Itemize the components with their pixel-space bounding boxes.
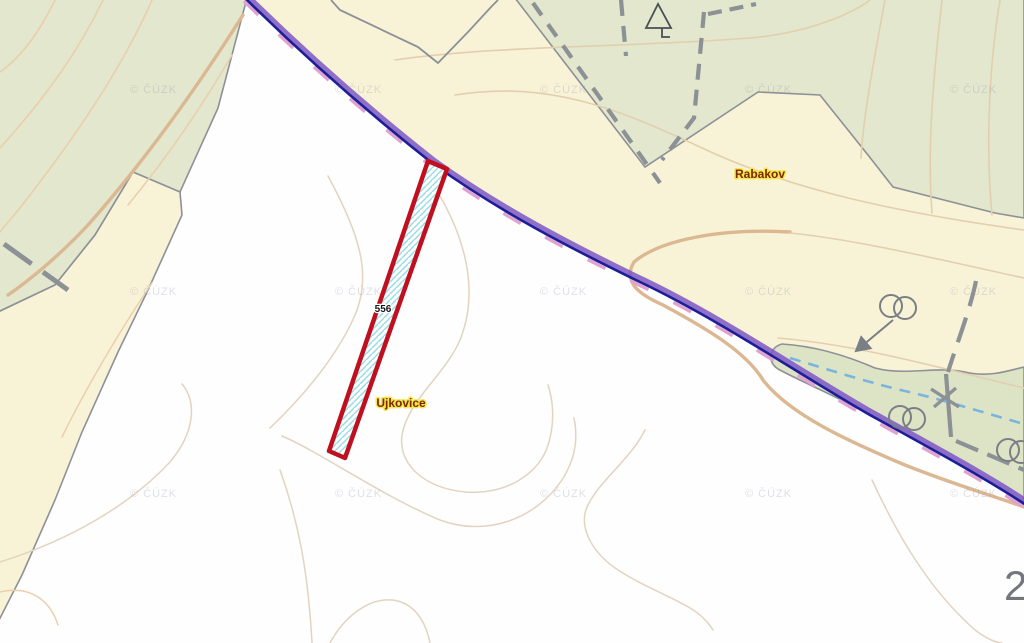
watermark: © ČÚZK <box>335 83 382 96</box>
watermark: © ČÚZK <box>130 487 177 500</box>
parcel-number-label: 556 <box>375 304 392 315</box>
place-label-ujkovice: Ujkovice <box>376 396 426 410</box>
watermark: © ČÚZK <box>335 487 382 500</box>
watermark: © ČÚZK <box>335 285 382 298</box>
watermark: © ČÚZK <box>540 83 587 96</box>
watermark: © ČÚZK <box>130 285 177 298</box>
watermark: © ČÚZK <box>540 487 587 500</box>
watermark: © ČÚZK <box>950 285 997 298</box>
watermark: © ČÚZK <box>130 83 177 96</box>
map-canvas[interactable]: 556 Rabakov Ujkovice 2 © ČÚZK © ČÚZK © Č… <box>0 0 1024 643</box>
watermark: © ČÚZK <box>540 285 587 298</box>
map-sheet-number: 2 <box>1004 562 1024 609</box>
place-label-rabakov: Rabakov <box>735 167 785 181</box>
watermark: © ČÚZK <box>950 83 997 96</box>
watermark: © ČÚZK <box>745 487 792 500</box>
watermark: © ČÚZK <box>745 285 792 298</box>
map-viewport[interactable]: 556 Rabakov Ujkovice 2 © ČÚZK © ČÚZK © Č… <box>0 0 1024 643</box>
watermark: © ČÚZK <box>950 487 997 500</box>
watermark: © ČÚZK <box>745 83 792 96</box>
